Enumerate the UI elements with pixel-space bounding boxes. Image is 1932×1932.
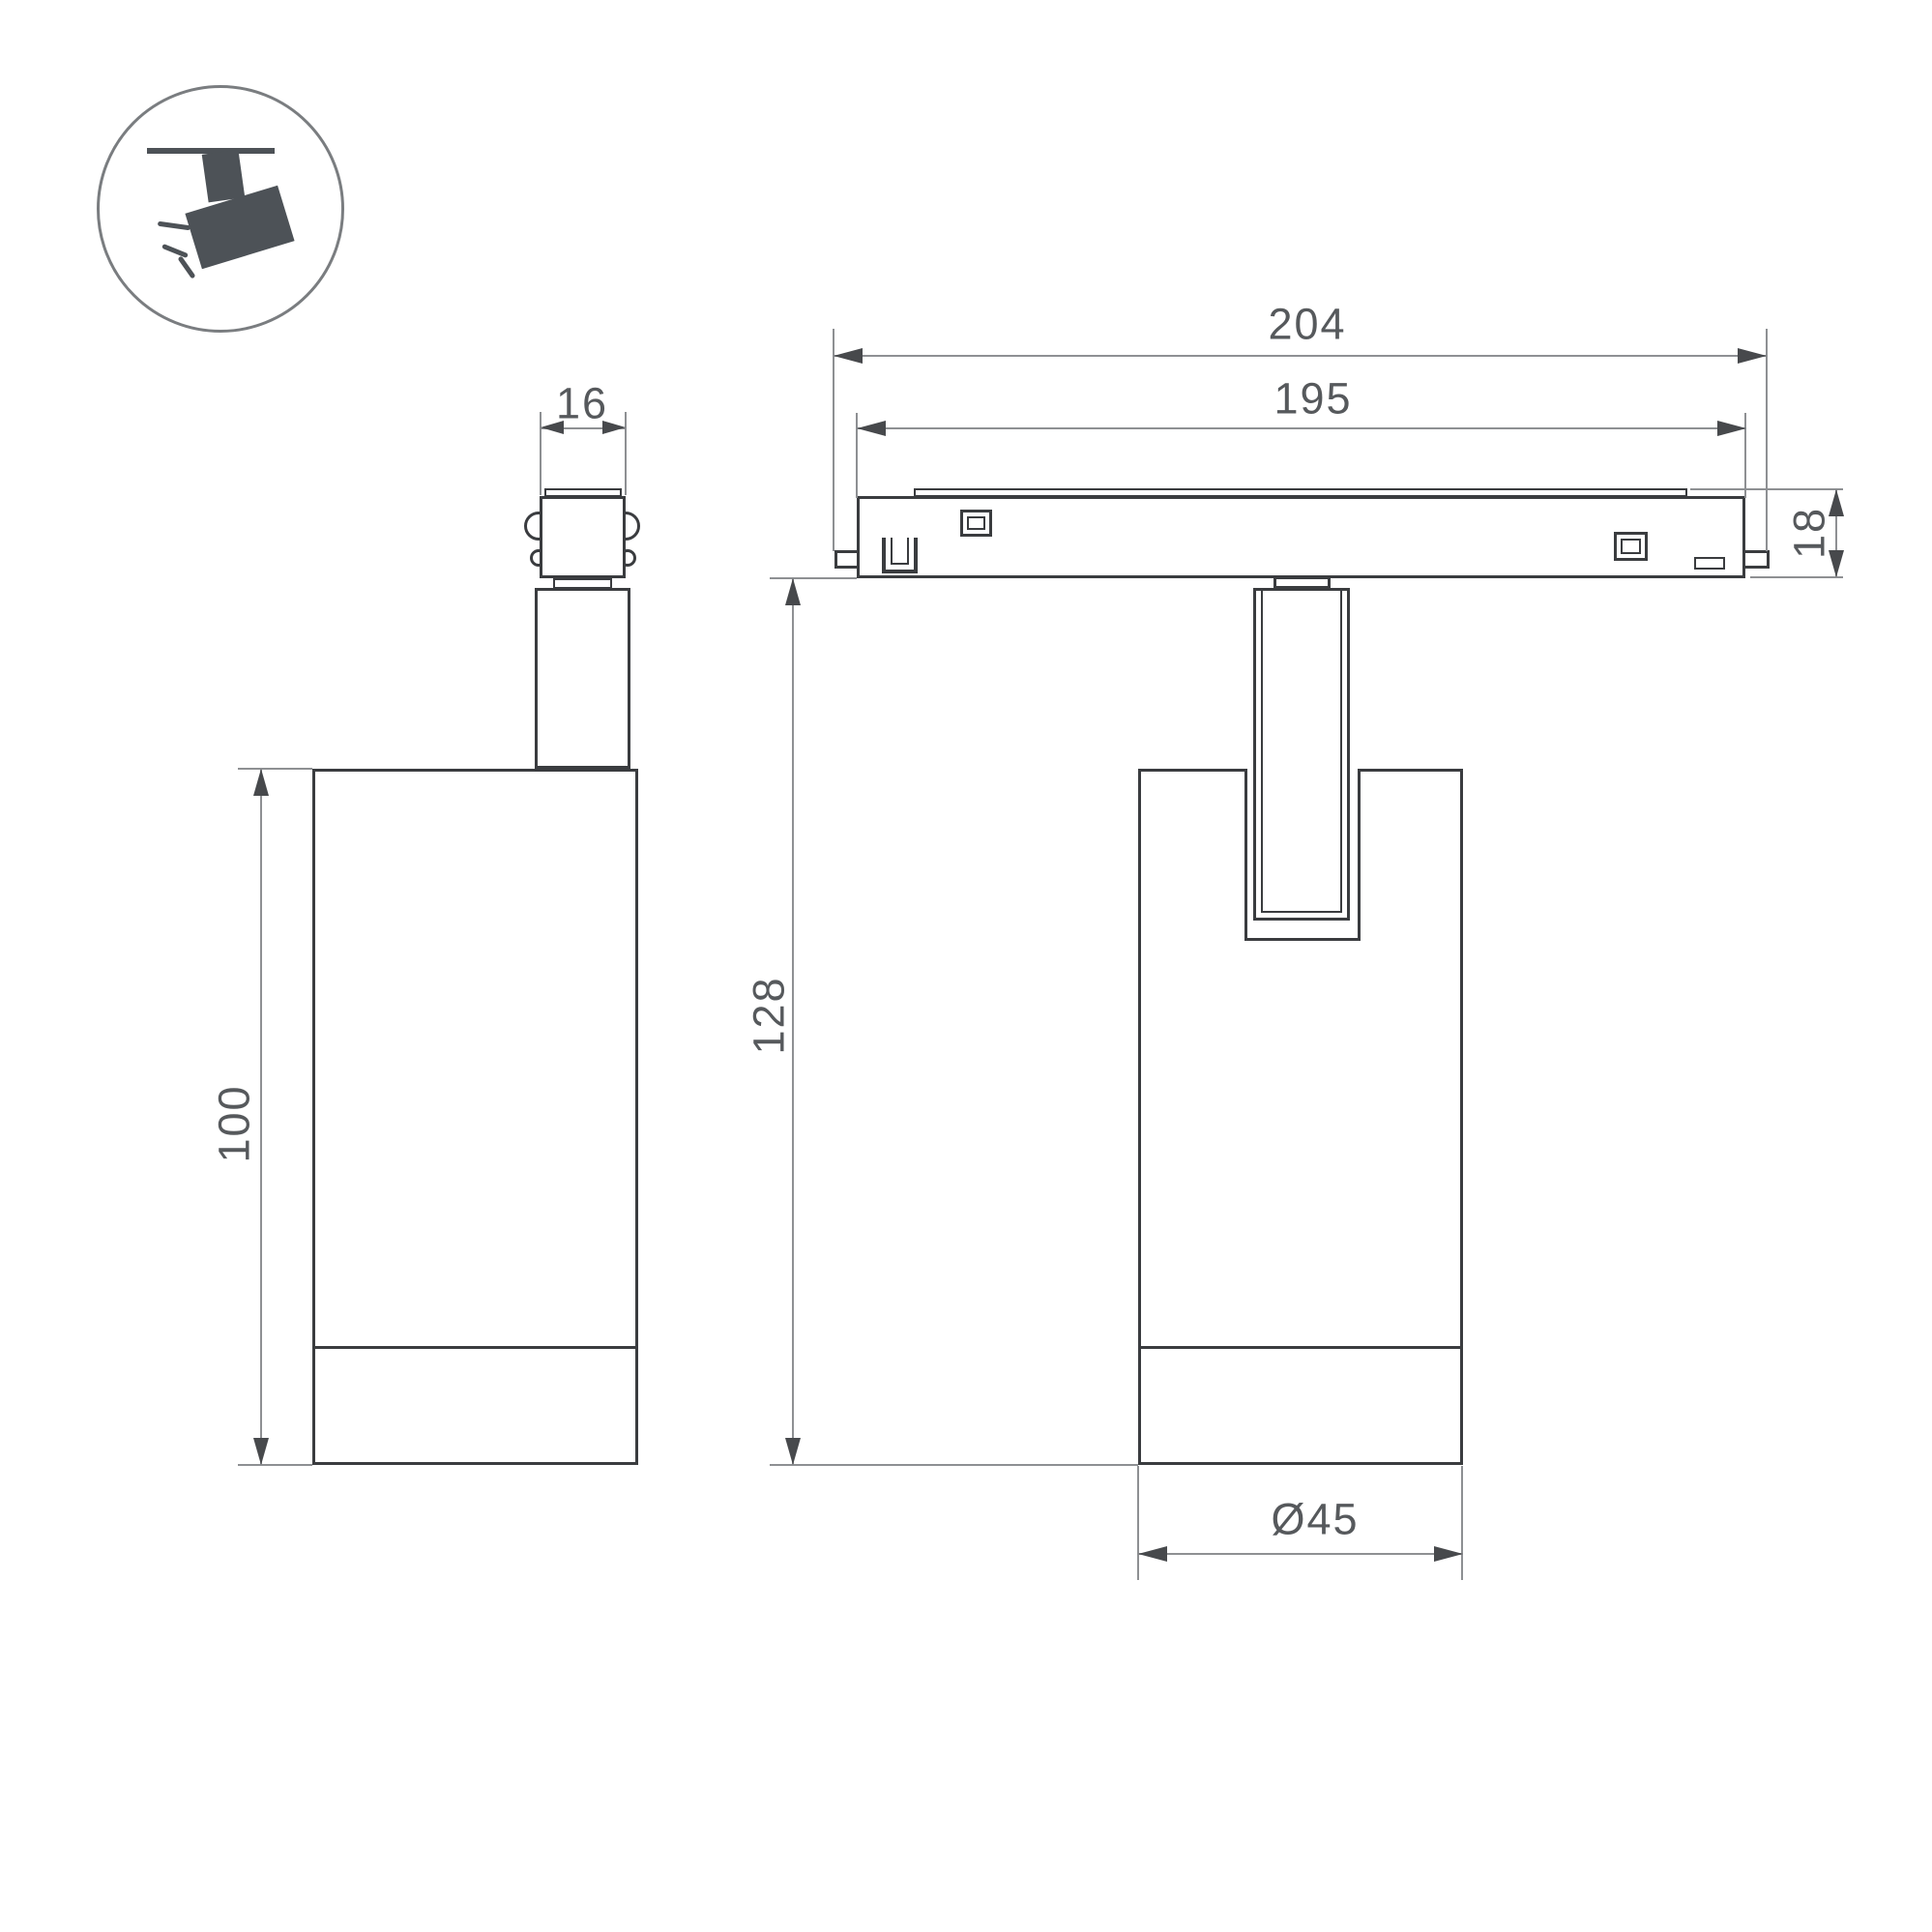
icon-track-stub [202,150,246,203]
dim-195-arrow-left [857,421,886,436]
dim-100-label: 100 [213,1084,256,1162]
front-view-stem-inner [1261,591,1342,913]
dim-128-arrow-up [785,578,801,605]
dim-195-label: 195 [1273,377,1352,421]
dim-45-label: Ø45 [1271,1498,1359,1541]
front-view-rail-clip-b [1614,532,1648,561]
front-view-track-rail [857,496,1745,578]
dim-128-label: 128 [747,976,791,1054]
dim-100-arrow-down [253,1438,269,1465]
dim-100-extension-bottom [238,1464,312,1466]
front-view-rail-clip-u-inner [891,538,909,565]
dim-100-line [260,769,262,1465]
dim-128-extension-bottom [770,1464,1138,1466]
dim-45-arrow-left [1138,1546,1167,1562]
dim-18-extension-top [1690,488,1843,490]
front-view-rail-tab-left [834,550,860,569]
dim-128-arrow-down [785,1438,801,1465]
side-view-track-connector [540,496,626,578]
front-view-notch-bottom [1244,938,1361,941]
side-view-lamp-body [312,769,638,1465]
front-view-rail-clip-a-inner [967,516,985,530]
front-view-rail-clip-a [960,510,992,537]
dim-100-arrow-up [253,769,269,796]
side-view-bezel-line [315,1346,635,1349]
front-view-rail-tab-right [1742,550,1770,569]
dim-100-extension-top [238,768,312,770]
front-view-bezel-line [1141,1346,1460,1349]
technical-drawing: 16 204 195 18 128 100 Ø45 [0,0,1932,1932]
dim-195-arrow-right [1717,421,1746,436]
dim-45-line [1138,1553,1463,1555]
dim-195-line [857,427,1746,429]
dim-204-arrow-left [834,348,863,364]
front-view-rail-clip-u [882,538,918,573]
front-view-stem [1253,588,1350,921]
front-view-notch-wall-left [1244,769,1247,941]
front-view-notch-wall-right [1358,769,1361,941]
dim-204-label: 204 [1268,303,1346,346]
dim-204-arrow-right [1738,348,1767,364]
dim-45-extension-left [1137,1466,1139,1580]
dim-204-line [834,355,1767,357]
dim-128-extension-top [770,577,857,579]
dim-45-extension-right [1461,1466,1463,1580]
side-view-stem [535,588,630,769]
dim-18-label: 18 [1788,507,1831,559]
front-view-rail-slot [1694,557,1725,570]
dim-16-label: 16 [556,382,608,425]
dim-45-arrow-right [1434,1546,1463,1562]
front-view-rail-clip-b-inner [1621,539,1641,554]
